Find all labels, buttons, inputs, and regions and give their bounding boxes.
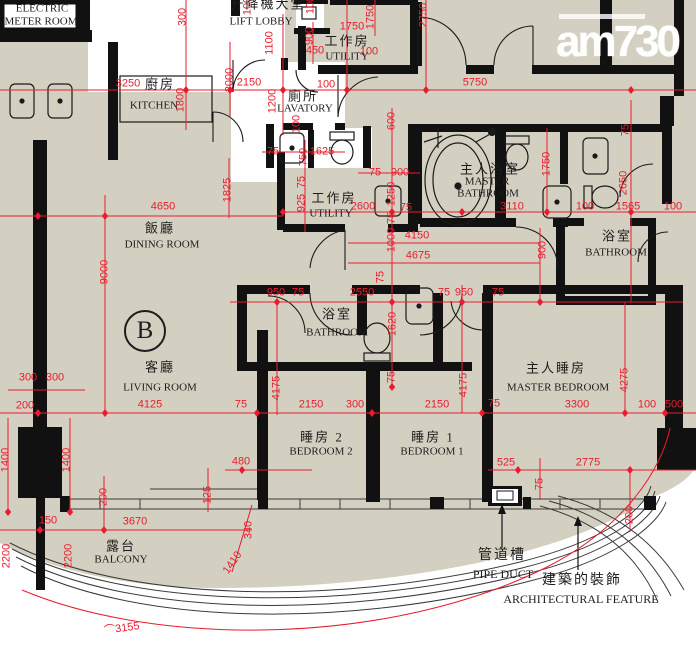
- pipe-duct-box: [488, 486, 522, 506]
- unit-badge: B: [124, 310, 166, 352]
- am730-logo-text: am730: [556, 21, 688, 63]
- am730-logo: am730: [556, 14, 688, 63]
- floorplan-page: 3001001001750275032501800200011009004501…: [0, 0, 696, 651]
- floorplan-drawing: [0, 0, 696, 651]
